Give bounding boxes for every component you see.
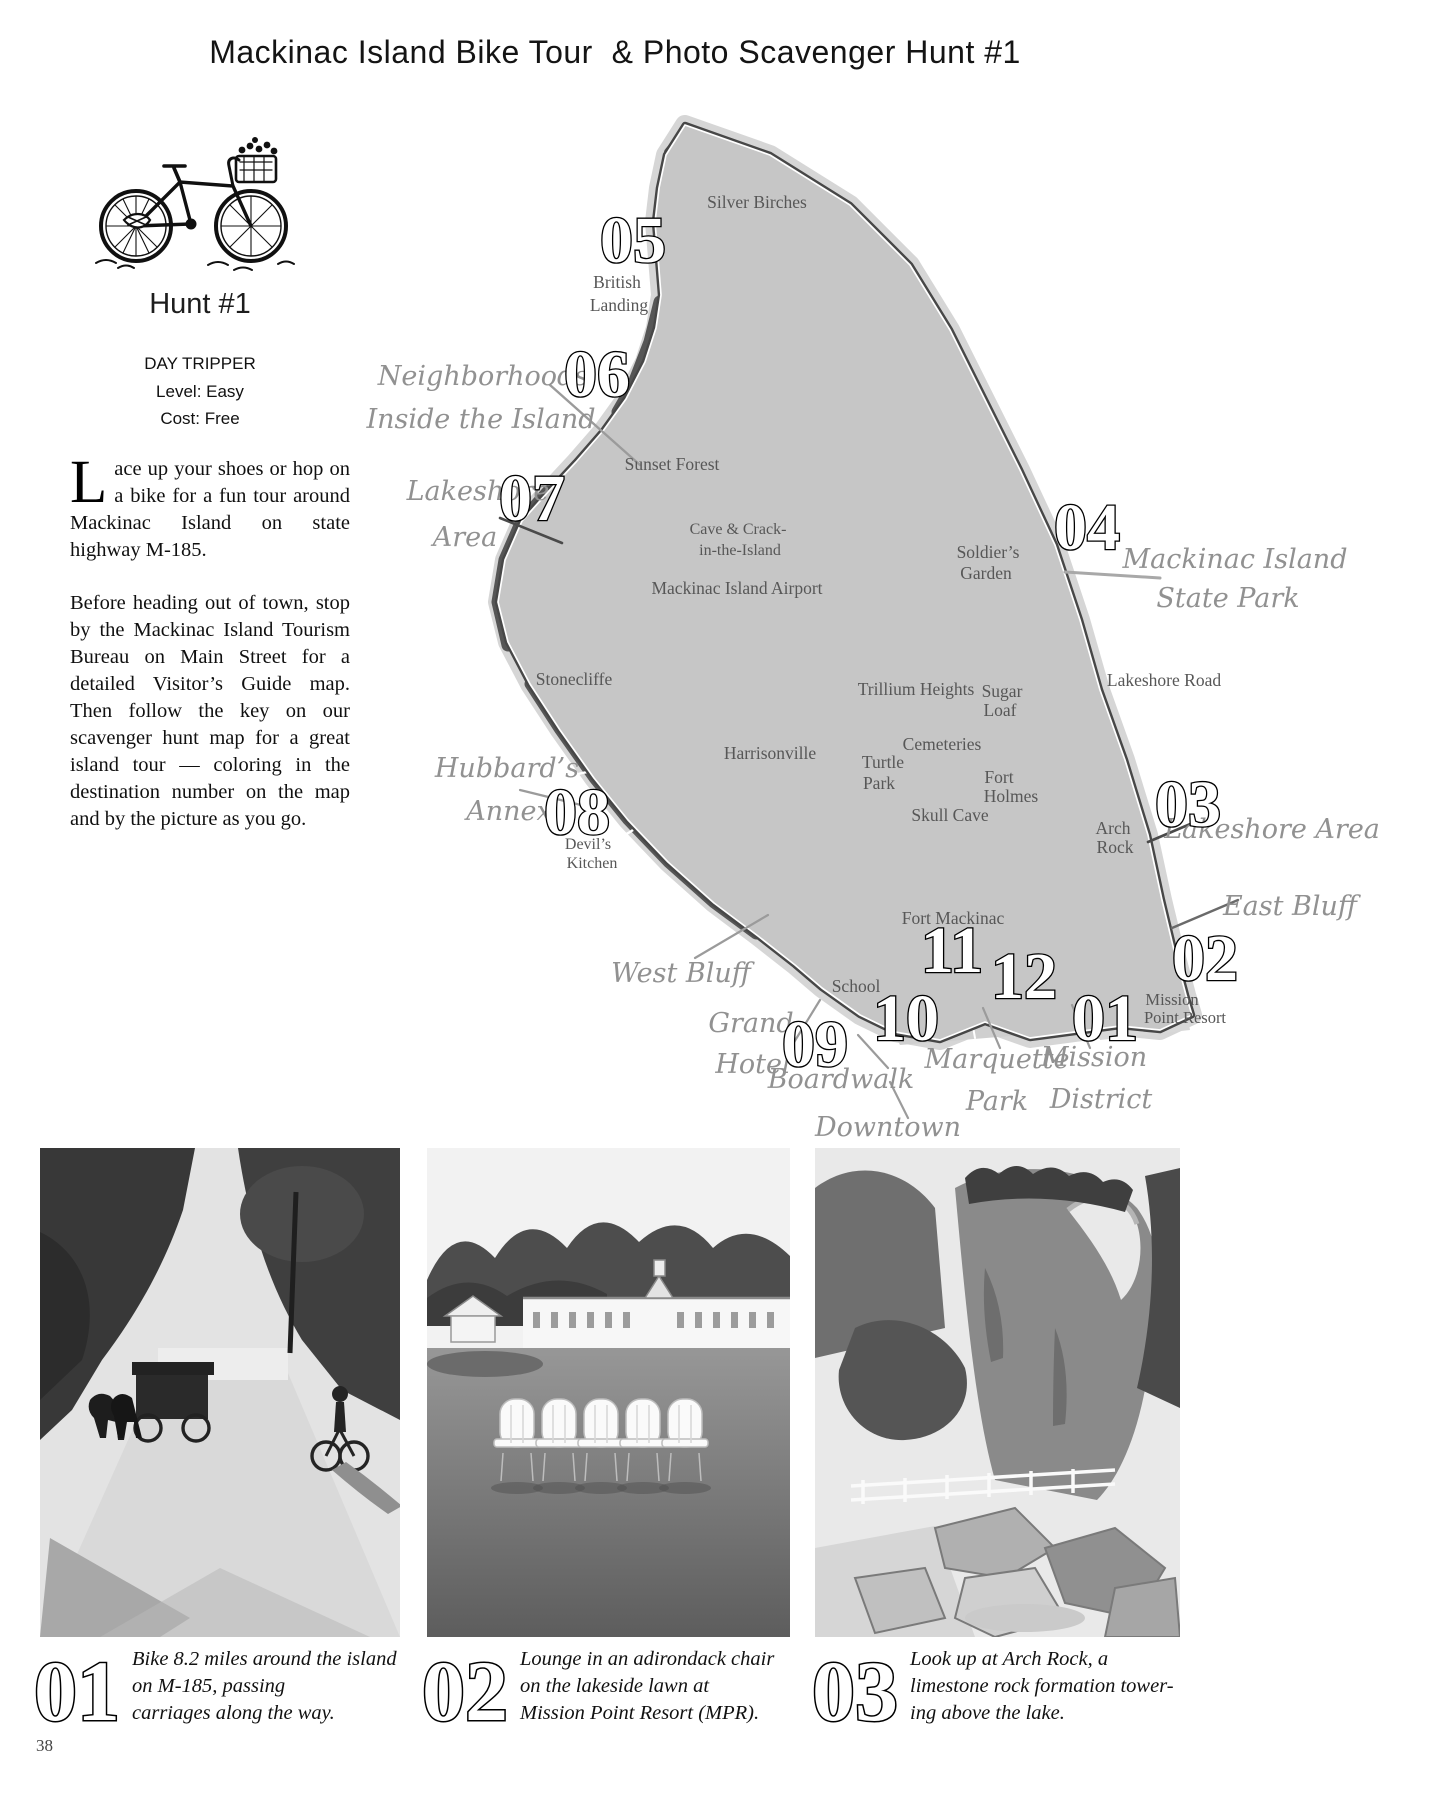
map-label-skull-cave: Skull Cave (911, 805, 989, 825)
map-key-west-bluff: West Bluff (611, 958, 755, 989)
photo-adirondack-chairs (427, 1148, 790, 1637)
map-marker-11: 11 (921, 914, 983, 987)
caption-number-01: 01 (33, 1647, 121, 1727)
map-label-sugar-loaf: Sugar (982, 681, 1023, 701)
trip-type: DAY TRIPPER (70, 350, 330, 378)
map-label-silver-birches: Silver Birches (707, 192, 807, 212)
hunt-meta: DAY TRIPPER Level: Easy Cost: Free (70, 350, 330, 433)
map-key-grand-hotel: Grand (708, 1008, 793, 1039)
trip-level: Level: Easy (70, 378, 330, 406)
map-marker-05: 05 (600, 204, 666, 277)
trip-cost: Cost: Free (70, 405, 330, 433)
svg-text:Park: Park (863, 773, 895, 793)
map-key-east-bluff: East Bluff (1222, 891, 1361, 922)
map-key-neighborhoods: Neighborhoods (377, 361, 588, 392)
map-key-state-park: Mackinac Island (1122, 544, 1348, 575)
map-label-soldiers-garden: Soldier’s (957, 542, 1020, 562)
bicycle-illustration (88, 108, 300, 280)
photo-arch-rock (815, 1148, 1180, 1637)
svg-text:03: 03 (812, 1647, 898, 1727)
svg-text:Park: Park (965, 1086, 1028, 1117)
map-label-stonecliffe: Stonecliffe (536, 669, 613, 689)
map-label-cemeteries: Cemeteries (903, 734, 982, 754)
intro-text: Lace up your shoes or hop on a bike for … (70, 456, 350, 859)
map-label-harrisonville: Harrisonville (724, 743, 817, 763)
svg-text:Kitchen: Kitchen (567, 855, 618, 872)
page-title: Mackinac Island Bike Tour & Photo Scaven… (0, 34, 1230, 71)
caption-number-03: 03 (811, 1647, 899, 1727)
map-marker-09: 09 (782, 1008, 848, 1081)
map-label-fort-holmes: Fort (984, 767, 1013, 787)
map-marker-04: 04 (1054, 491, 1120, 564)
map-label-lakeshore-road: Lakeshore Road (1107, 670, 1221, 690)
caption-text-01: Bike 8.2 miles around the island on M-18… (132, 1646, 397, 1727)
island-map: Silver Birches British Landing Sunset Fo… (340, 88, 1380, 1150)
map-label-turtle-park: Turtle (862, 752, 904, 772)
photo-resort-lawn-scene (427, 1148, 790, 1637)
svg-text:District: District (1049, 1084, 1153, 1115)
intro-paragraph-2: Before heading out of town, stop by the … (70, 590, 350, 833)
svg-text:Inside the Island: Inside the Island (365, 404, 595, 435)
hunt-title: Hunt #1 (70, 288, 330, 321)
map-label-arch-rock: Arch (1096, 818, 1131, 838)
svg-text:Holmes: Holmes (984, 786, 1039, 806)
svg-text:Landing: Landing (590, 295, 649, 315)
map-marker-01: 01 (1072, 982, 1138, 1055)
map-marker-07: 07 (499, 462, 565, 535)
caption-text-03: Look up at Arch Rock, a limestone rock f… (910, 1646, 1174, 1727)
map-marker-10: 10 (873, 982, 939, 1055)
drop-cap: L (70, 456, 114, 506)
svg-text:in-the-Island: in-the-Island (699, 542, 781, 559)
map-label-cave-and-crack: Cave & Crack- (690, 521, 787, 538)
caption-stop-02: 02 Lounge in an adirondack chair on the … (421, 1646, 813, 1727)
map-key-downtown: Downtown (814, 1112, 961, 1143)
map-label-trillium-heights: Trillium Heights (858, 679, 975, 699)
photo-arch-rock-scene (815, 1148, 1180, 1637)
map-marker-08: 08 (544, 776, 610, 849)
photo-carriage-and-cyclist (40, 1148, 400, 1637)
bicycle-icon (88, 108, 300, 280)
map-label-airport: Mackinac Island Airport (651, 578, 822, 598)
photo-carriage-scene (40, 1148, 400, 1637)
svg-text:01: 01 (34, 1647, 120, 1727)
svg-text:State Park: State Park (1156, 583, 1299, 614)
svg-text:Area: Area (430, 522, 497, 553)
map-marker-06: 06 (564, 338, 630, 411)
map-label-sunset-forest: Sunset Forest (625, 454, 720, 474)
page-number: 38 (36, 1736, 53, 1756)
map-marker-12: 12 (991, 940, 1057, 1013)
caption-stop-01: 01 Bike 8.2 miles around the island on M… (33, 1646, 425, 1727)
svg-text:Annex: Annex (463, 796, 551, 827)
svg-text:Garden: Garden (960, 563, 1012, 583)
caption-stop-03: 03 Look up at Arch Rock, a limestone roc… (811, 1646, 1211, 1727)
svg-text:Loaf: Loaf (983, 700, 1016, 720)
caption-number-02: 02 (421, 1647, 509, 1727)
intro-paragraph-1: Lace up your shoes or hop on a bike for … (70, 456, 350, 564)
svg-text:Point Resort: Point Resort (1144, 1008, 1226, 1027)
svg-text:02: 02 (422, 1647, 508, 1727)
caption-text-02: Lounge in an adirondack chair on the lak… (520, 1646, 774, 1727)
map-marker-02: 02 (1172, 922, 1238, 995)
map-marker-03: 03 (1155, 768, 1221, 841)
svg-text:Rock: Rock (1097, 837, 1134, 857)
